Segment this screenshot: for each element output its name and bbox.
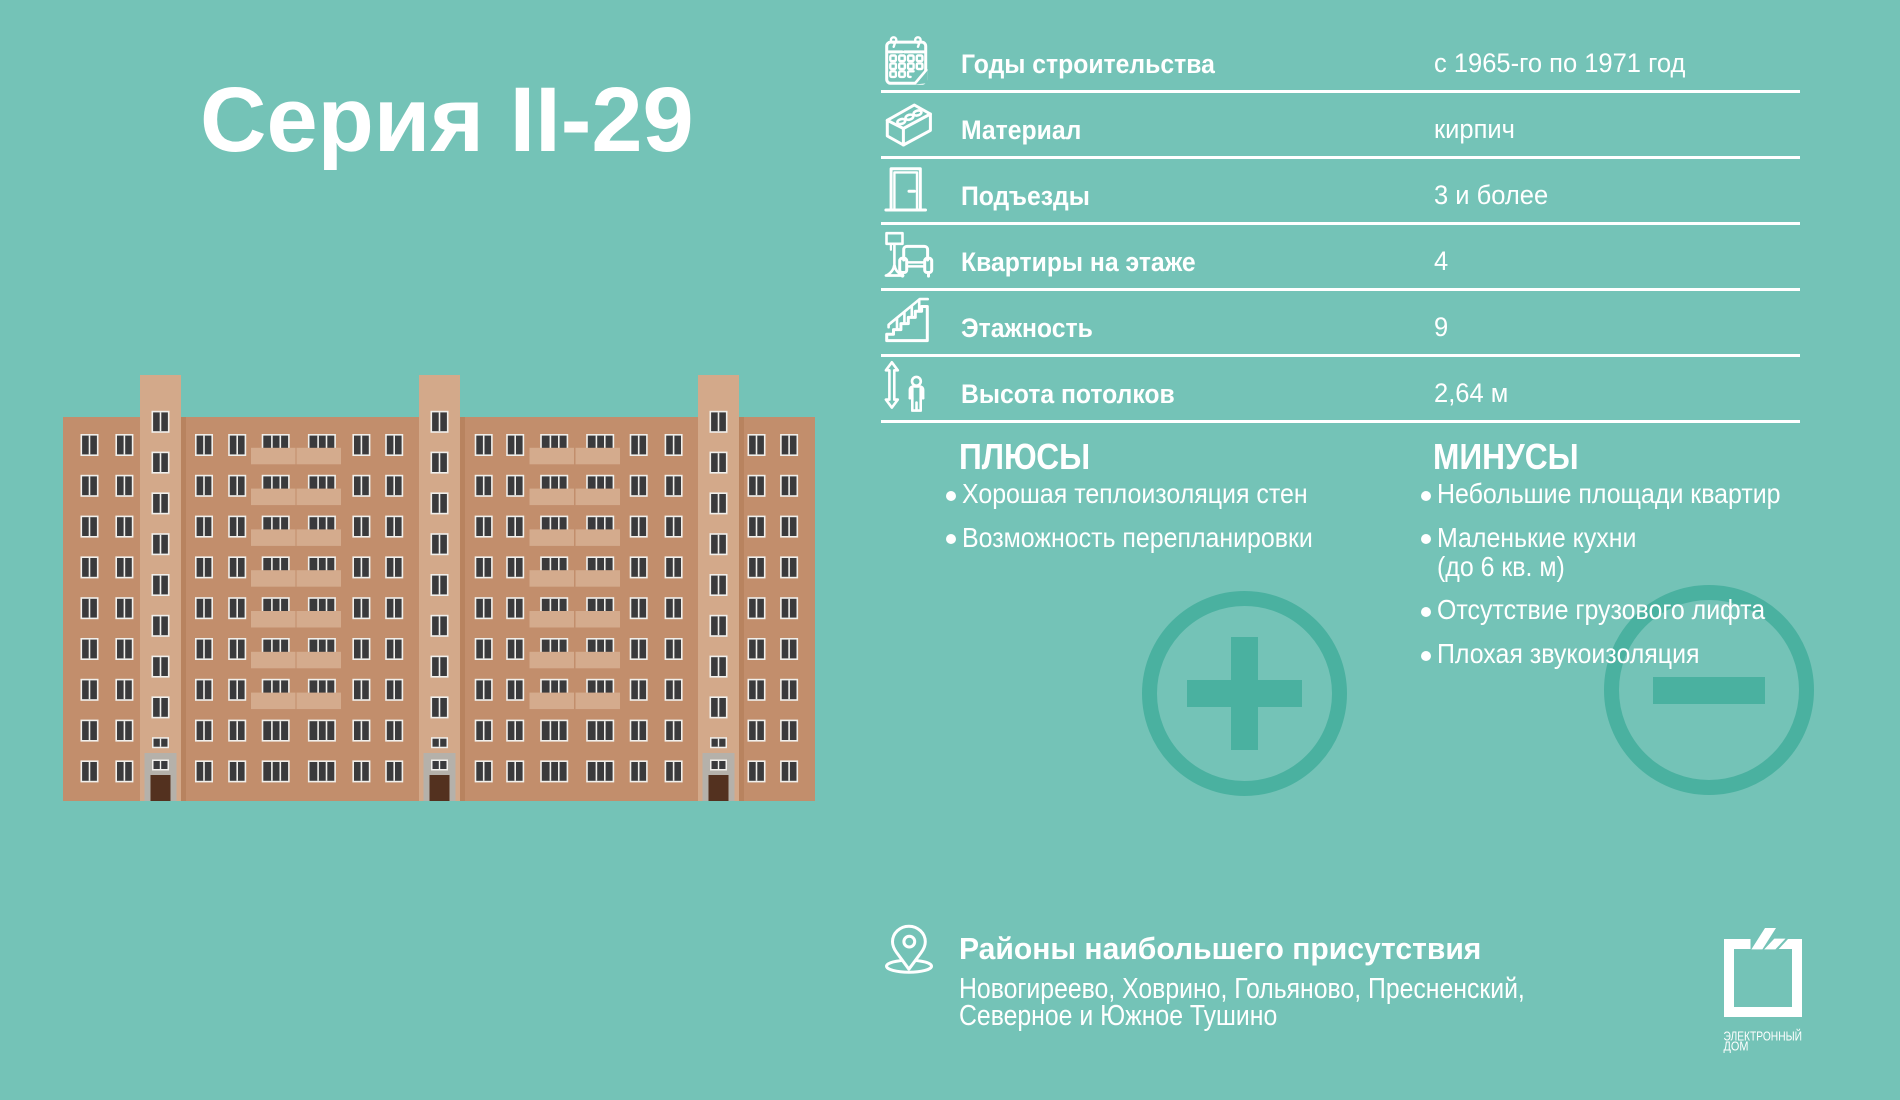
svg-text:ДОМ: ДОМ: [1724, 1039, 1749, 1054]
